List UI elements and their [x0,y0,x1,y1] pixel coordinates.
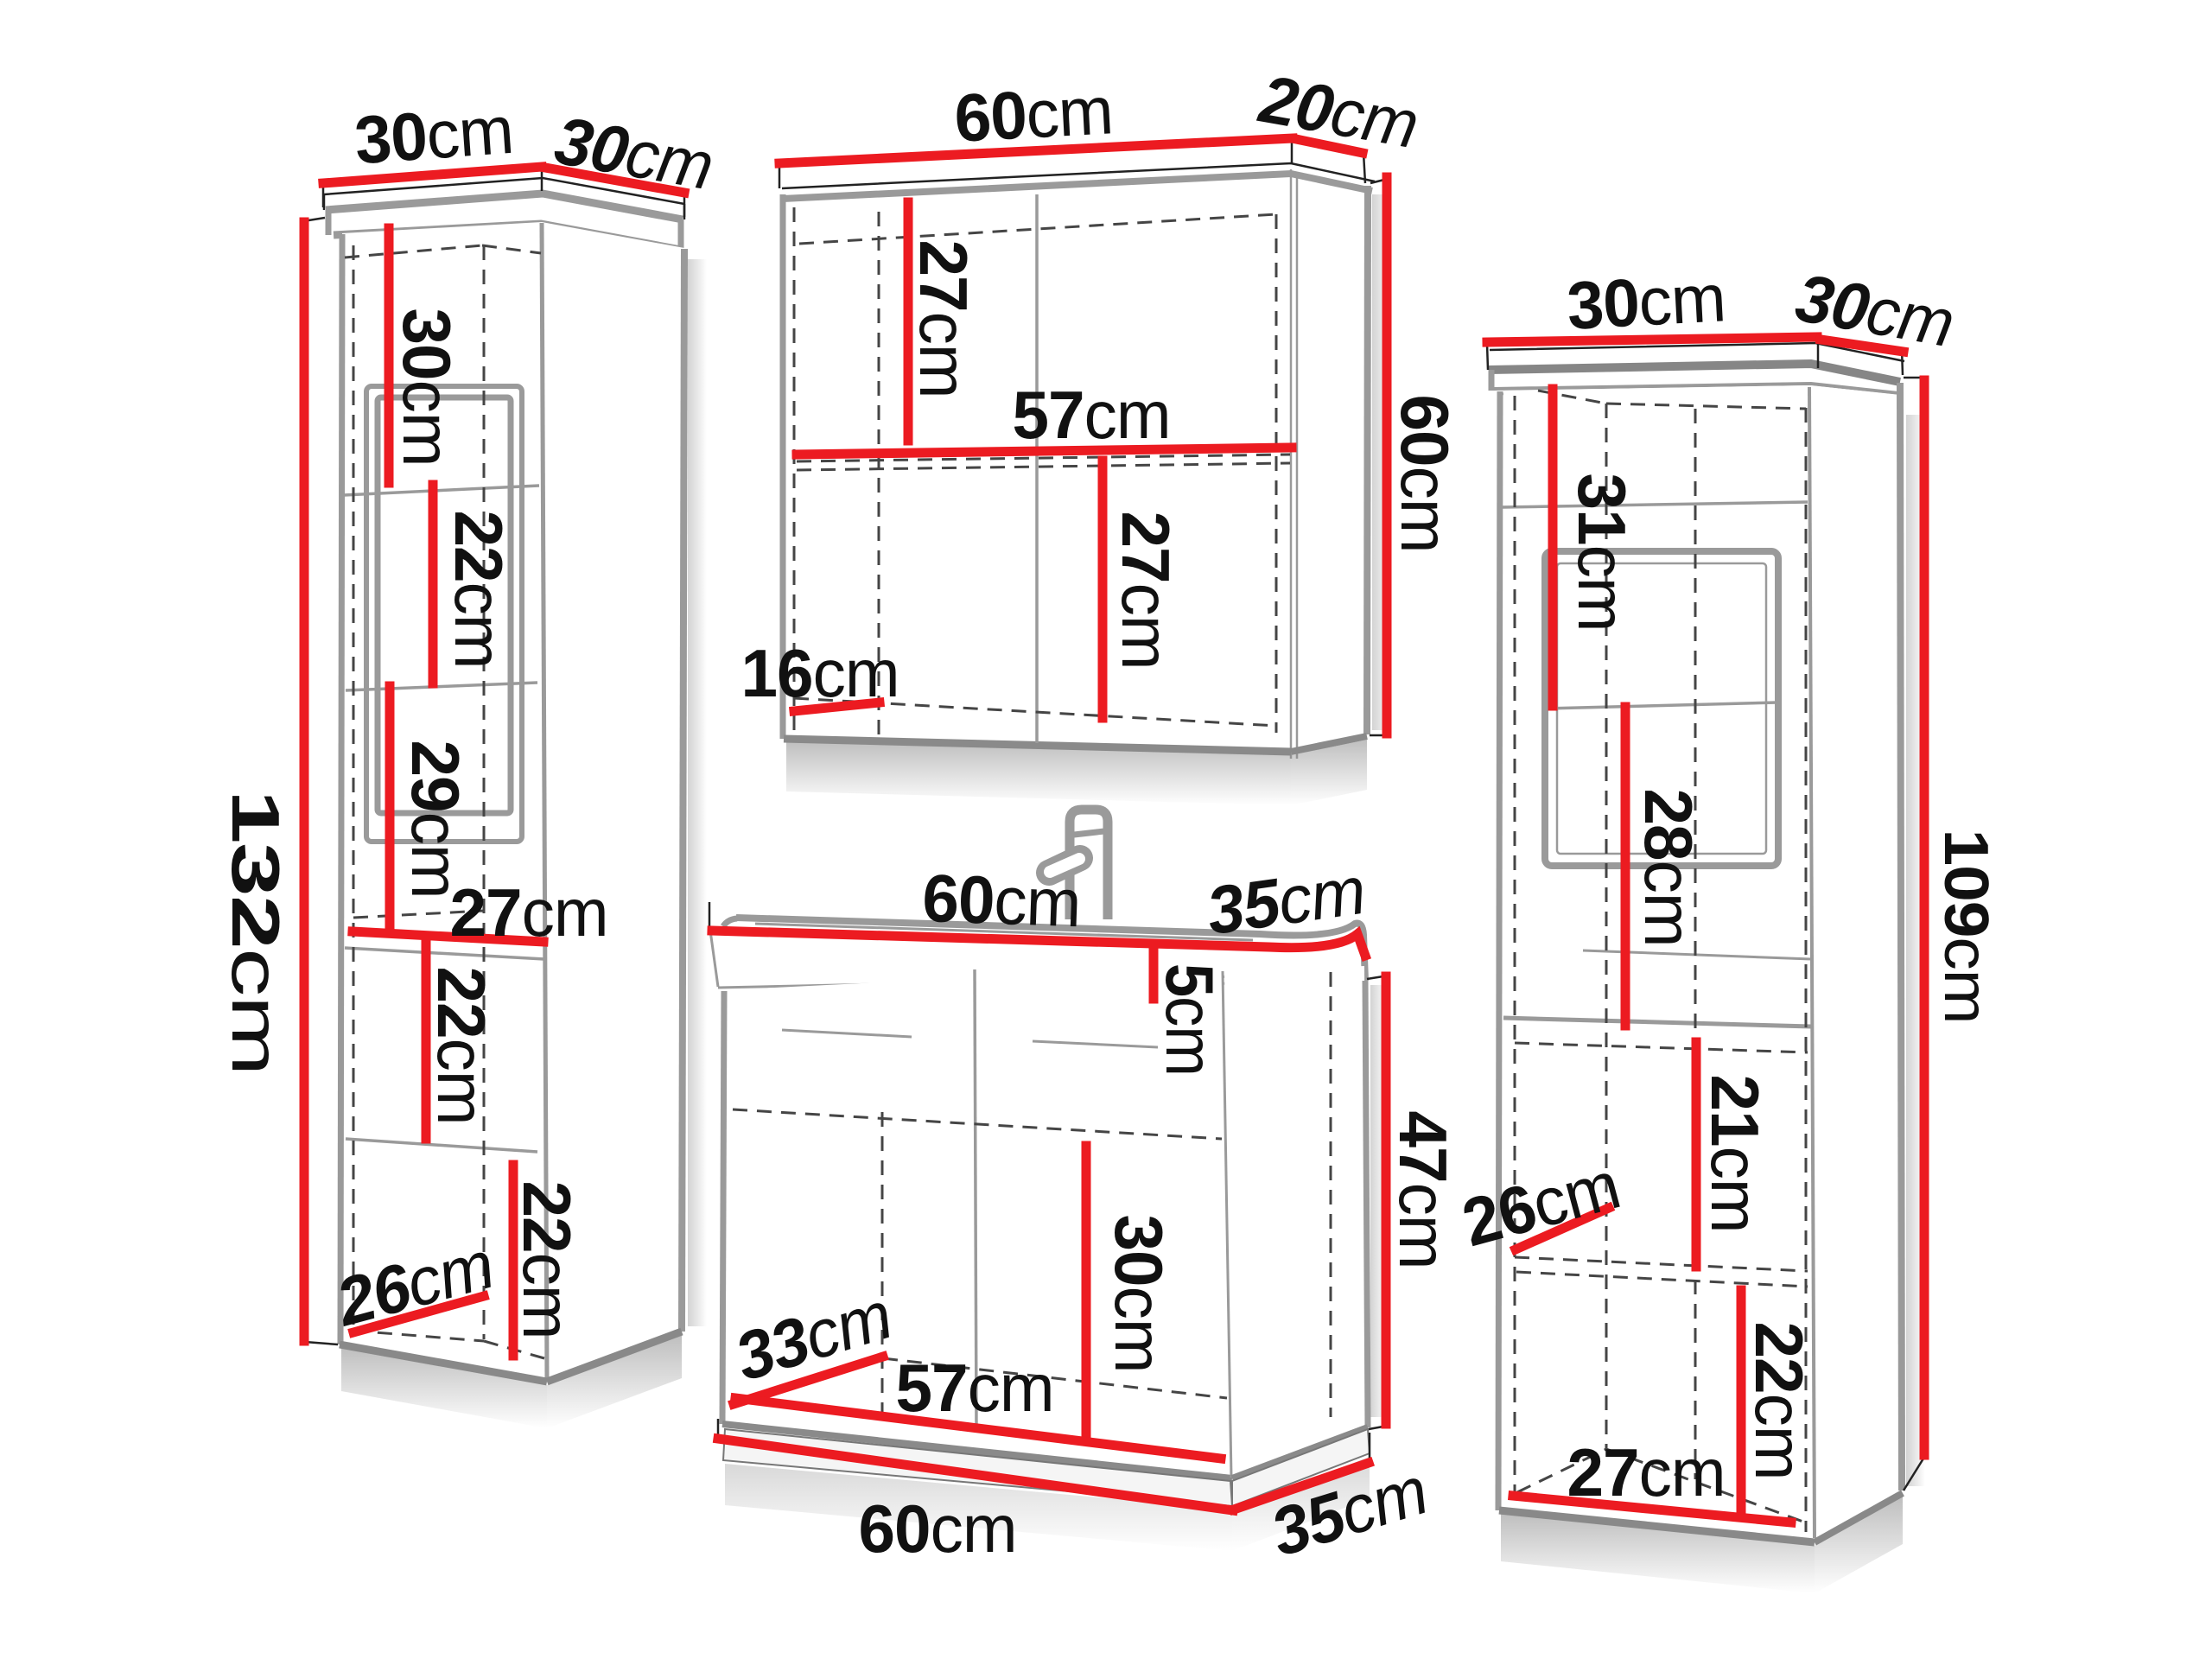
svg-text:47cm: 47cm [1385,1111,1461,1269]
svg-text:60cm: 60cm [1387,395,1463,553]
svg-text:132cm: 132cm [218,790,294,1075]
svg-text:27cm: 27cm [906,240,982,398]
svg-text:27cm: 27cm [1108,512,1184,670]
svg-text:27cm: 27cm [1567,1434,1726,1510]
svg-text:28cm: 28cm [1630,789,1707,947]
svg-text:16cm: 16cm [741,635,899,711]
svg-text:30cm: 30cm [1565,259,1726,343]
svg-text:5cm: 5cm [1152,963,1228,1076]
svg-text:109cm: 109cm [1931,829,2000,1024]
svg-text:22cm: 22cm [509,1181,585,1339]
svg-text:22cm: 22cm [441,511,517,669]
svg-text:31cm: 31cm [1564,474,1640,632]
svg-text:21cm: 21cm [1697,1075,1773,1233]
svg-text:22cm: 22cm [1741,1322,1817,1480]
svg-text:60cm: 60cm [859,1491,1017,1567]
svg-text:30cm: 30cm [389,308,465,467]
svg-text:22cm: 22cm [423,967,499,1125]
svg-text:60cm: 60cm [952,72,1114,156]
svg-text:30cm: 30cm [1101,1215,1177,1373]
svg-text:27cm: 27cm [450,874,608,950]
svg-text:60cm: 60cm [921,860,1082,941]
svg-text:57cm: 57cm [1013,377,1171,453]
svg-text:30cm: 30cm [353,92,516,179]
svg-text:57cm: 57cm [896,1350,1054,1426]
